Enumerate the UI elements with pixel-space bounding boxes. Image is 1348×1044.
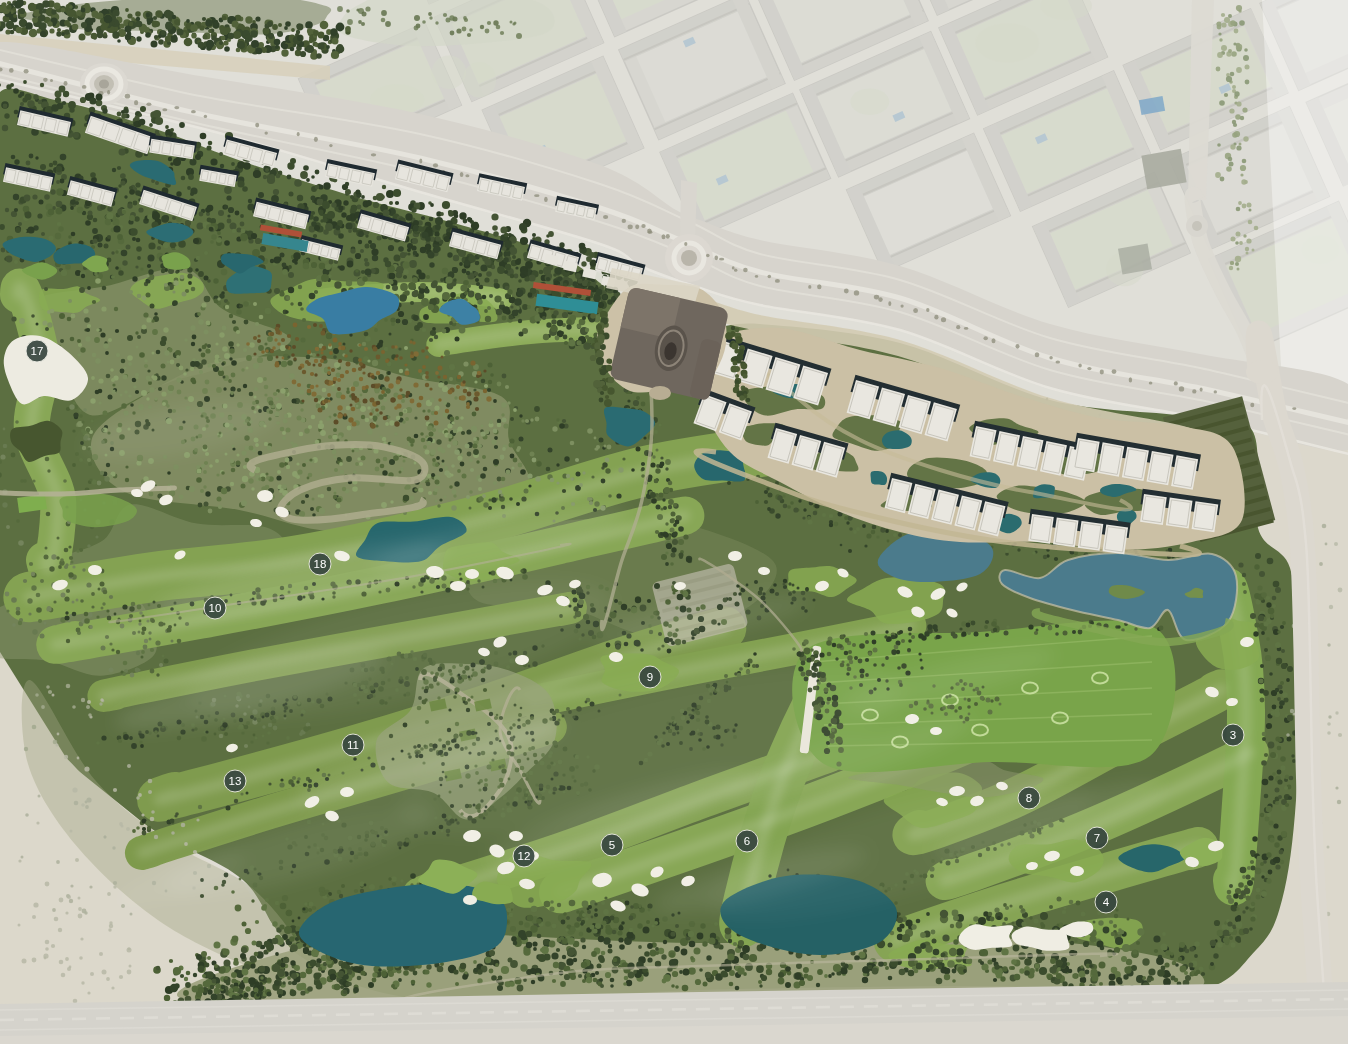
svg-text:9: 9: [647, 671, 653, 683]
svg-text:11: 11: [347, 739, 359, 751]
svg-text:4: 4: [1103, 896, 1110, 908]
svg-text:12: 12: [518, 850, 531, 862]
svg-text:8: 8: [1026, 792, 1032, 804]
svg-text:17: 17: [31, 345, 44, 357]
svg-text:13: 13: [229, 775, 242, 787]
svg-text:5: 5: [609, 839, 615, 851]
svg-text:3: 3: [1230, 729, 1236, 741]
svg-text:7: 7: [1094, 832, 1100, 844]
svg-text:10: 10: [209, 602, 222, 614]
svg-text:6: 6: [744, 835, 750, 847]
svg-text:18: 18: [314, 558, 327, 570]
